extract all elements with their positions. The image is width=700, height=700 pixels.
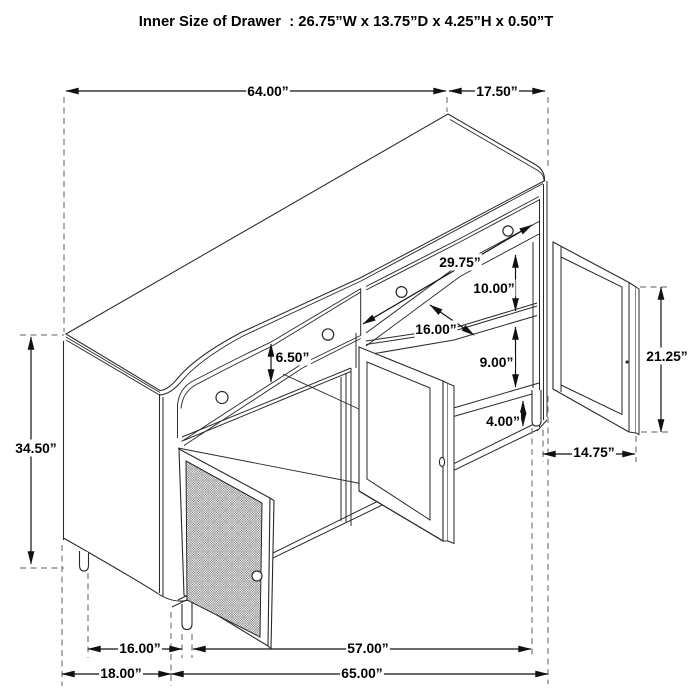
svg-text:10.00”: 10.00” (473, 281, 514, 296)
svg-text:9.00”: 9.00” (480, 355, 514, 370)
svg-text:16.00”: 16.00” (415, 322, 456, 337)
svg-text:14.75”: 14.75” (573, 445, 614, 460)
svg-text:18.00”: 18.00” (100, 666, 141, 681)
svg-text:65.00”: 65.00” (341, 666, 382, 681)
svg-text:6.50”: 6.50” (276, 350, 310, 365)
svg-text:21.25”: 21.25” (646, 349, 687, 364)
svg-text:34.50”: 34.50” (15, 441, 56, 456)
svg-text:57.00”: 57.00” (347, 641, 388, 656)
svg-text:Inner Size of Drawer : 26.75”: Inner Size of Drawer : 26.75”W x 13.75”D… (139, 14, 554, 30)
svg-text:64.00”: 64.00” (247, 84, 288, 99)
svg-text:16.00”: 16.00” (119, 641, 160, 656)
svg-text:4.00”: 4.00” (486, 414, 520, 429)
svg-text:17.50”: 17.50” (476, 84, 517, 99)
svg-text:29.75”: 29.75” (439, 255, 480, 270)
